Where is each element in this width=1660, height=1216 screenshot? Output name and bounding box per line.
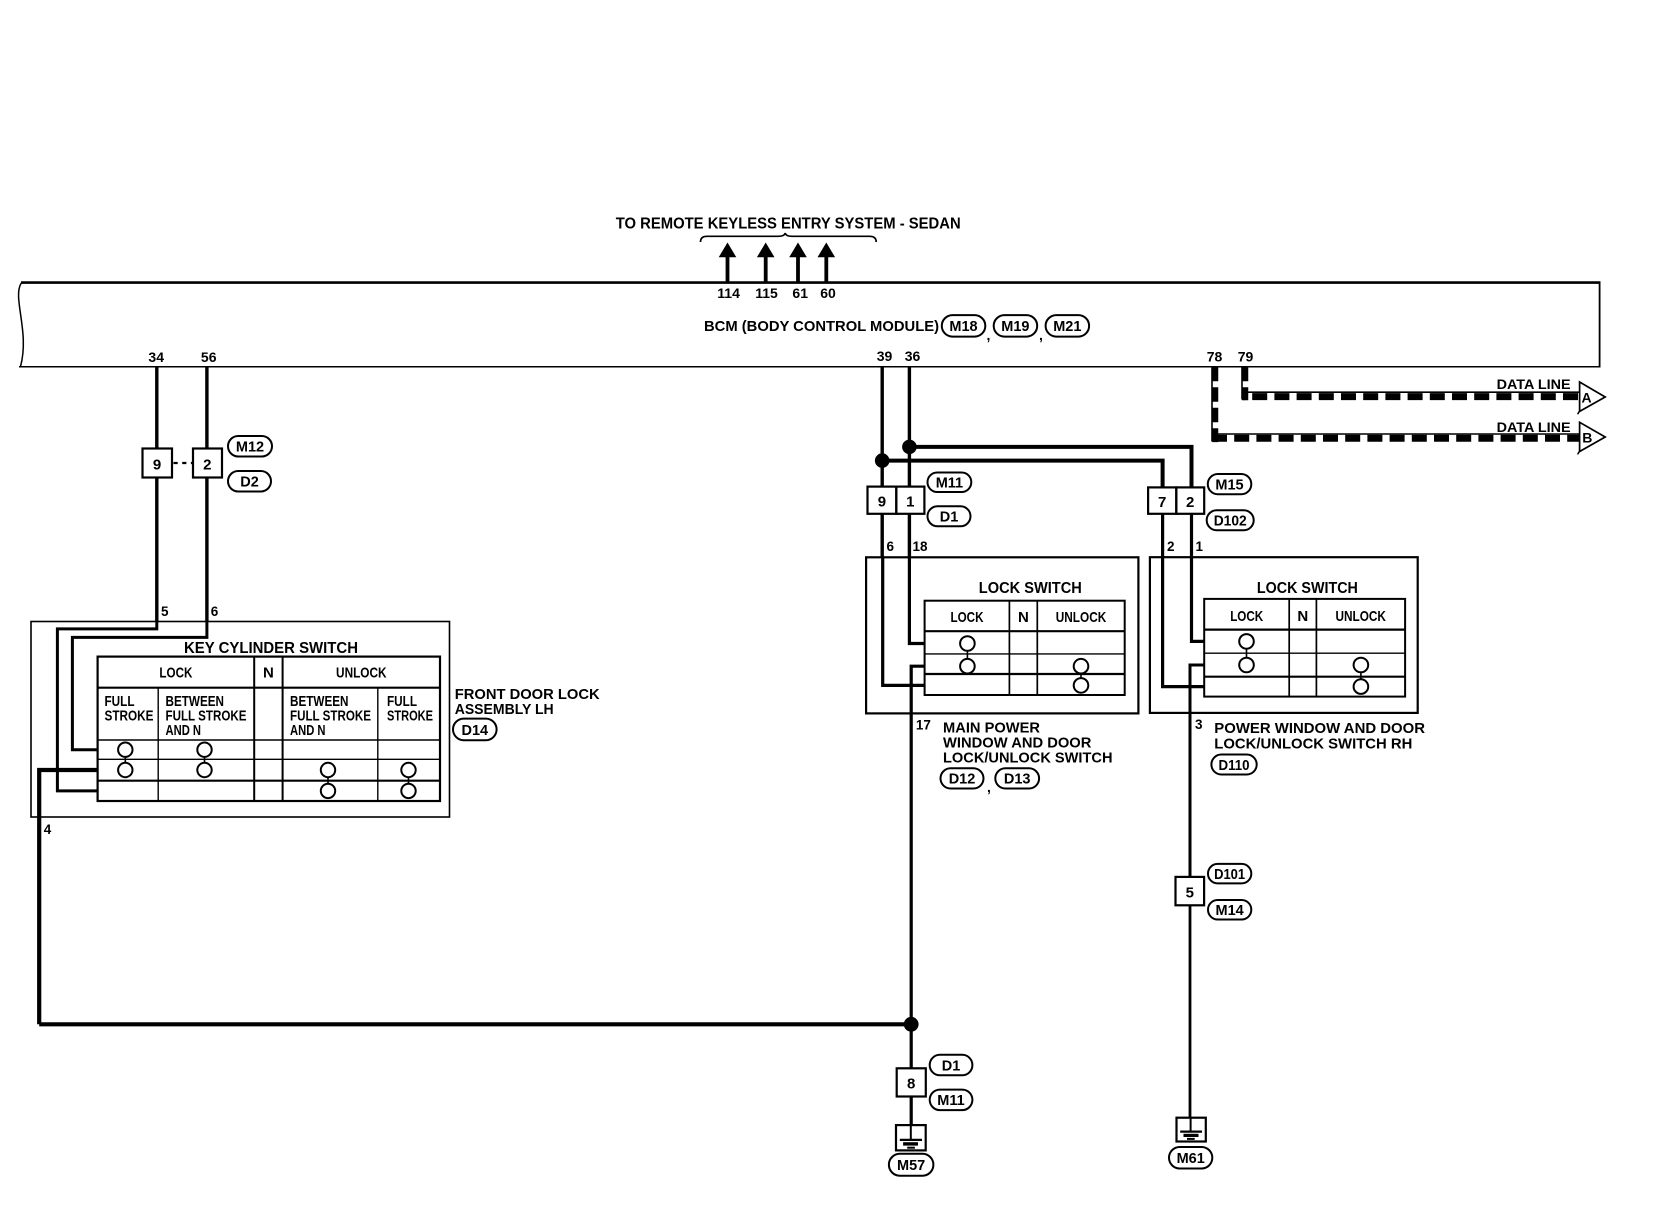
svg-text:M12: M12 <box>236 440 264 456</box>
svg-text:M61: M61 <box>1177 1151 1205 1167</box>
svg-text:LOCK: LOCK <box>159 665 192 682</box>
svg-text:9: 9 <box>878 494 886 511</box>
svg-text:114: 114 <box>717 285 740 301</box>
svg-text:7: 7 <box>1158 494 1166 511</box>
svg-text:61: 61 <box>792 285 808 301</box>
svg-text:6: 6 <box>887 539 895 554</box>
svg-text:6: 6 <box>211 604 219 619</box>
svg-text:1: 1 <box>1196 539 1204 554</box>
svg-text:LOCK: LOCK <box>951 609 984 626</box>
svg-text:DATA LINE: DATA LINE <box>1497 376 1571 392</box>
svg-text:,: , <box>987 327 991 343</box>
svg-text:N: N <box>1018 609 1029 626</box>
svg-text:4: 4 <box>44 822 52 837</box>
svg-text:B: B <box>1582 430 1592 446</box>
svg-text:LOCK SWITCH: LOCK SWITCH <box>1257 580 1358 597</box>
svg-text:D14: D14 <box>461 723 488 739</box>
svg-text:KEY CYLINDER SWITCH: KEY CYLINDER SWITCH <box>184 640 358 657</box>
svg-text:UNLOCK: UNLOCK <box>1335 608 1386 625</box>
svg-text:AND N: AND N <box>166 722 202 739</box>
svg-text:BCM (BODY CONTROL MODULE): BCM (BODY CONTROL MODULE) <box>704 318 939 335</box>
svg-text:3: 3 <box>1195 717 1203 732</box>
svg-text:79: 79 <box>1238 349 1254 365</box>
svg-text:D101: D101 <box>1214 867 1245 883</box>
svg-text:,: , <box>1039 327 1043 343</box>
svg-text:M15: M15 <box>1215 478 1243 494</box>
svg-text:34: 34 <box>148 349 164 365</box>
svg-text:115: 115 <box>755 285 778 301</box>
svg-text:56: 56 <box>201 349 217 365</box>
svg-text:M19: M19 <box>1001 319 1029 335</box>
svg-text:N: N <box>1297 608 1308 625</box>
svg-text:M14: M14 <box>1215 903 1243 919</box>
svg-text:2: 2 <box>1186 494 1194 511</box>
svg-text:A: A <box>1582 390 1592 406</box>
svg-text:STROKE: STROKE <box>387 707 433 724</box>
svg-text:18: 18 <box>913 539 929 554</box>
svg-text:M11: M11 <box>936 476 963 492</box>
svg-text:M21: M21 <box>1053 319 1081 335</box>
svg-text:UNLOCK: UNLOCK <box>1056 609 1107 626</box>
svg-text:D102: D102 <box>1214 514 1247 530</box>
svg-text:AND N: AND N <box>290 722 326 739</box>
svg-text:POWER WINDOW AND DOOR: POWER WINDOW AND DOOR <box>1214 720 1425 737</box>
svg-text:D110: D110 <box>1219 758 1250 774</box>
svg-text:2: 2 <box>203 456 211 473</box>
svg-text:LOCK: LOCK <box>1230 608 1263 625</box>
svg-text:2: 2 <box>1167 539 1175 554</box>
svg-text:D13: D13 <box>1004 772 1031 788</box>
svg-text:M57: M57 <box>897 1158 925 1174</box>
svg-text:LOCK/UNLOCK SWITCH: LOCK/UNLOCK SWITCH <box>943 749 1113 766</box>
svg-text:,: , <box>987 779 991 795</box>
svg-text:DATA LINE: DATA LINE <box>1497 419 1571 435</box>
svg-text:5: 5 <box>161 604 169 619</box>
svg-text:D2: D2 <box>240 475 259 491</box>
svg-text:LOCK SWITCH: LOCK SWITCH <box>979 580 1082 597</box>
svg-text:8: 8 <box>907 1076 915 1093</box>
svg-text:17: 17 <box>916 717 931 732</box>
svg-text:UNLOCK: UNLOCK <box>336 665 387 682</box>
svg-text:N: N <box>263 665 274 682</box>
svg-text:5: 5 <box>1186 884 1194 901</box>
svg-text:LOCK/UNLOCK SWITCH RH: LOCK/UNLOCK SWITCH RH <box>1214 736 1412 753</box>
svg-text:D1: D1 <box>940 510 959 526</box>
svg-text:9: 9 <box>153 456 161 473</box>
svg-text:ASSEMBLY LH: ASSEMBLY LH <box>455 701 554 718</box>
svg-text:78: 78 <box>1207 349 1223 365</box>
svg-text:STROKE: STROKE <box>105 707 154 724</box>
svg-text:M11: M11 <box>937 1093 964 1109</box>
svg-text:60: 60 <box>820 285 836 301</box>
svg-text:36: 36 <box>905 348 921 364</box>
svg-text:M18: M18 <box>949 319 977 335</box>
svg-text:TO REMOTE KEYLESS ENTRY SYSTEM: TO REMOTE KEYLESS ENTRY SYSTEM - SEDAN <box>616 216 961 233</box>
svg-text:39: 39 <box>877 348 893 364</box>
svg-text:1: 1 <box>906 494 914 511</box>
svg-text:D1: D1 <box>942 1058 961 1074</box>
svg-text:D12: D12 <box>949 772 976 788</box>
